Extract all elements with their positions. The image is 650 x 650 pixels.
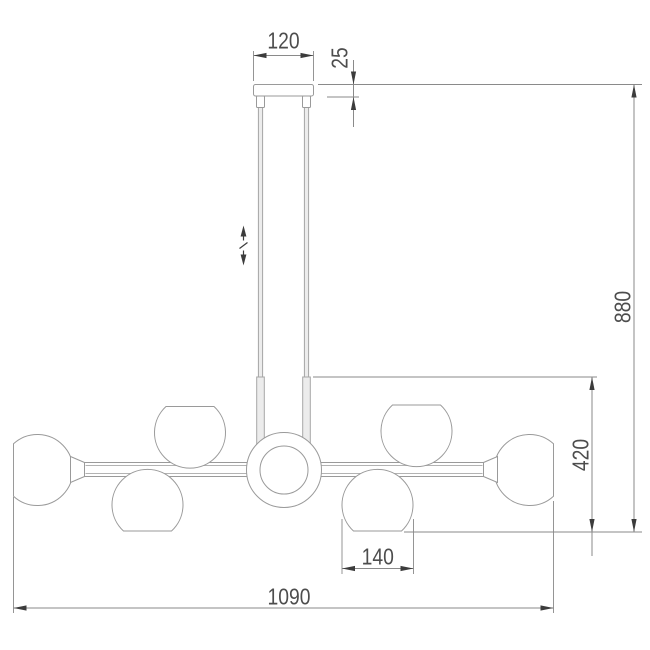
shade-lower-right [342, 469, 413, 531]
height-adjust-arrow-down [241, 255, 247, 266]
shade-upper-left [154, 407, 225, 469]
plate-connector-left [257, 96, 265, 108]
dim-1090-arrow-left [14, 605, 27, 610]
socket-cone-left [71, 457, 85, 483]
dim-canopy-height: 25 [318, 47, 642, 127]
shade-right-end [494, 435, 553, 506]
dim-140-label: 140 [362, 545, 394, 570]
suspension-rod-left [258, 106, 262, 377]
dim-overall-width: 1090 [14, 497, 554, 613]
rod-coupler-right [303, 377, 311, 445]
drawing-canvas: 120 25 880 420 [0, 0, 650, 650]
dim-420-arrow-bottom [589, 519, 594, 532]
dim-140-arrow-left [342, 566, 355, 571]
dim-880-arrow-bottom [631, 519, 636, 532]
suspension-rod-right [304, 106, 308, 377]
shade-lower-left [112, 469, 183, 531]
central-hub [247, 433, 322, 508]
rod-coupler-left [257, 377, 265, 445]
height-adjust-slash [240, 243, 248, 249]
height-adjust-icon [240, 226, 248, 266]
dim-1090-arrow-right [541, 605, 554, 610]
dim-120-label: 120 [267, 29, 299, 54]
chandelier-dimension-drawing: 120 25 880 420 [0, 0, 650, 650]
dimensions: 120 25 880 420 [14, 29, 643, 613]
dim-canopy-width: 120 [254, 29, 314, 81]
dim-880-arrow-top [631, 85, 636, 98]
dim-120-arrow-right [301, 53, 314, 58]
plate-connector-right [303, 96, 311, 108]
dim-420-label: 420 [569, 439, 594, 471]
dim-420-arrow-top [589, 377, 594, 390]
hub-inner-ring [260, 446, 308, 494]
shade-upper-right [381, 405, 452, 467]
dim-120-arrow-left [254, 53, 267, 58]
dim-25-arrow-bottom [351, 97, 356, 110]
shade-left-end [14, 434, 73, 505]
dim-25-arrow-top [351, 72, 356, 85]
dim-880-label: 880 [611, 291, 636, 323]
dim-25-label: 25 [328, 47, 353, 68]
socket-cone-right [484, 457, 498, 483]
dim-1090-label: 1090 [268, 585, 311, 610]
ceiling-plate [254, 85, 314, 97]
fixture [14, 85, 554, 532]
height-adjust-arrow-up [241, 226, 247, 237]
dim-140-arrow-right [401, 566, 414, 571]
